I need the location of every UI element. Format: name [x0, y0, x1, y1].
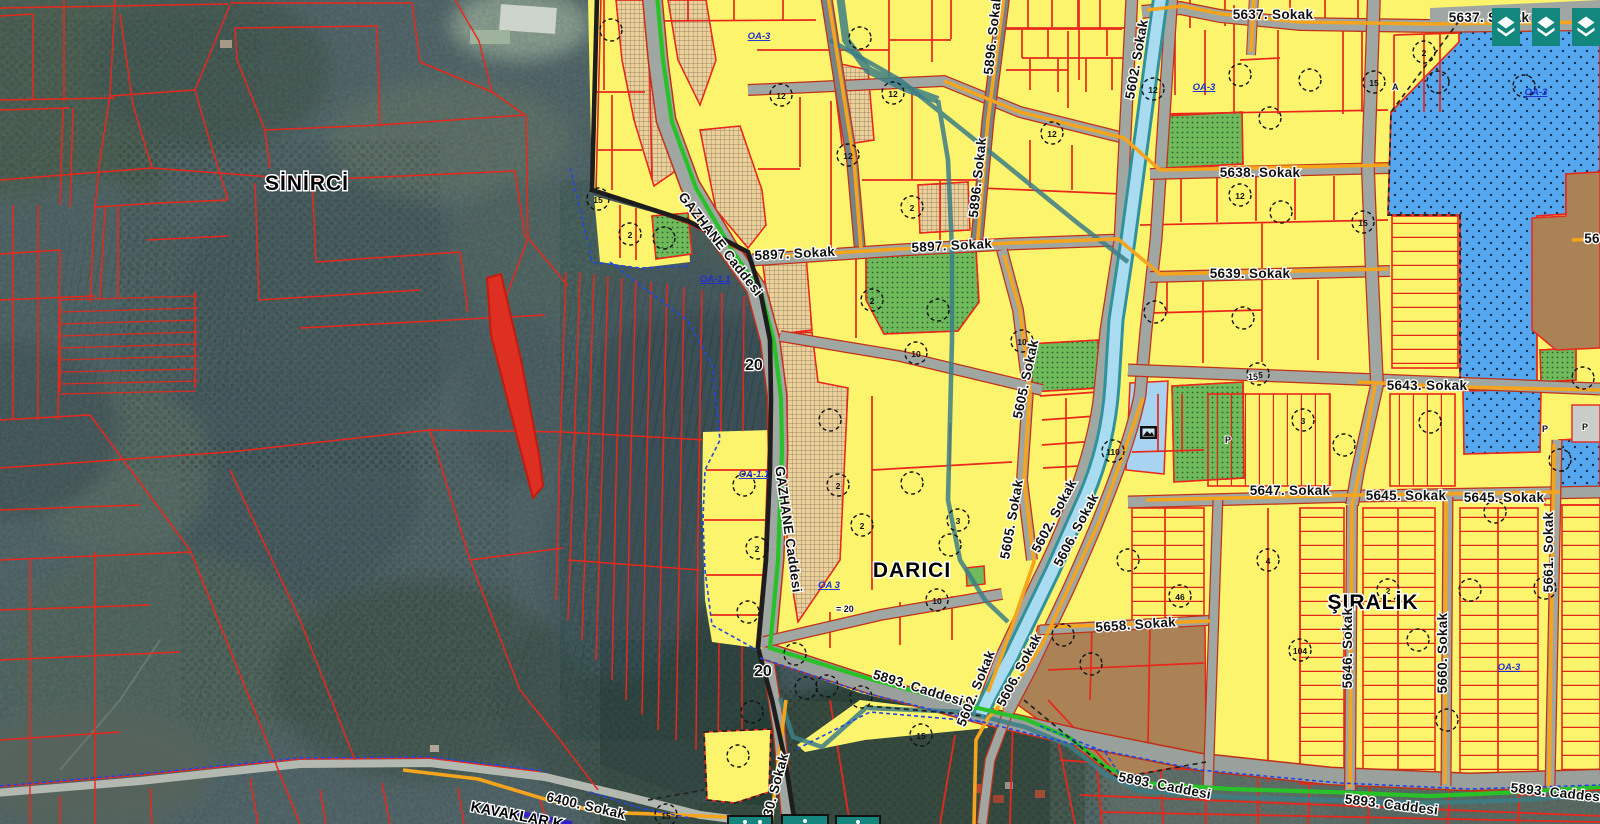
svg-text:12: 12 [776, 91, 786, 101]
svg-text:OA-3: OA-3 [1525, 87, 1548, 98]
svg-text:12: 12 [888, 89, 898, 99]
svg-text:P: P [1225, 435, 1231, 445]
svg-text:5643. Sokak: 5643. Sokak [1387, 378, 1468, 393]
svg-text:5638. Sokak: 5638. Sokak [1220, 165, 1301, 180]
svg-text:2: 2 [860, 521, 865, 531]
svg-text:3: 3 [1301, 416, 1306, 426]
svg-text:104: 104 [1293, 646, 1307, 656]
svg-text:12: 12 [1235, 191, 1245, 201]
svg-text:5639. Sokak: 5639. Sokak [1210, 266, 1291, 281]
svg-text:15: 15 [593, 195, 603, 205]
svg-text:OA-3: OA-3 [1193, 82, 1216, 93]
svg-text:12: 12 [843, 151, 853, 161]
svg-text:15: 15 [1369, 78, 1379, 88]
svg-text:12: 12 [1047, 129, 1057, 139]
svg-text:5660. Sokak: 5660. Sokak [1435, 613, 1450, 694]
svg-text:DARICI: DARICI [873, 559, 951, 582]
svg-text:P: P [1542, 424, 1548, 434]
svg-text:A: A [1392, 82, 1399, 92]
svg-text:OA-1.1: OA-1.1 [739, 469, 770, 480]
svg-text:OA-1.1: OA-1.1 [700, 274, 731, 285]
svg-text:5646. Sokak: 5646. Sokak [1340, 608, 1355, 689]
svg-text:= 20: = 20 [836, 604, 854, 614]
svg-text:2: 2 [910, 203, 915, 213]
svg-text:46: 46 [1175, 592, 1185, 602]
svg-text:5645. Sokak: 5645. Sokak [1366, 488, 1447, 503]
svg-text:5661. Sokak: 5661. Sokak [1541, 512, 1556, 593]
svg-text:5647. Sokak: 5647. Sokak [1250, 483, 1331, 498]
svg-text:15: 15 [1248, 372, 1258, 382]
svg-text:OA-3: OA-3 [1498, 662, 1521, 673]
svg-text:15: 15 [661, 811, 671, 821]
svg-text:OA-3: OA-3 [748, 31, 771, 42]
svg-text:12: 12 [1148, 85, 1158, 95]
svg-text:SİNİRCİ: SİNİRCİ [265, 172, 349, 195]
svg-text:OA 3: OA 3 [818, 580, 841, 591]
svg-text:10: 10 [911, 349, 921, 359]
svg-text:5637. Sokak: 5637. Sokak [1233, 7, 1314, 22]
svg-text:5645. Sokak: 5645. Sokak [1464, 490, 1545, 505]
svg-text:2: 2 [836, 481, 841, 491]
svg-text:10: 10 [932, 596, 942, 606]
svg-text:15: 15 [916, 731, 926, 741]
svg-text:56: 56 [1584, 231, 1600, 246]
svg-text:2: 2 [628, 230, 633, 240]
svg-text:15: 15 [1358, 218, 1368, 228]
svg-text:110: 110 [1106, 447, 1120, 457]
svg-text:P: P [1582, 422, 1588, 432]
svg-text:2: 2 [1422, 48, 1427, 58]
svg-text:2: 2 [870, 296, 875, 306]
svg-text:4: 4 [1266, 556, 1271, 566]
svg-text:20: 20 [754, 663, 772, 680]
svg-text:3: 3 [956, 516, 961, 526]
svg-text:2: 2 [755, 544, 760, 554]
svg-text:20: 20 [745, 357, 763, 374]
